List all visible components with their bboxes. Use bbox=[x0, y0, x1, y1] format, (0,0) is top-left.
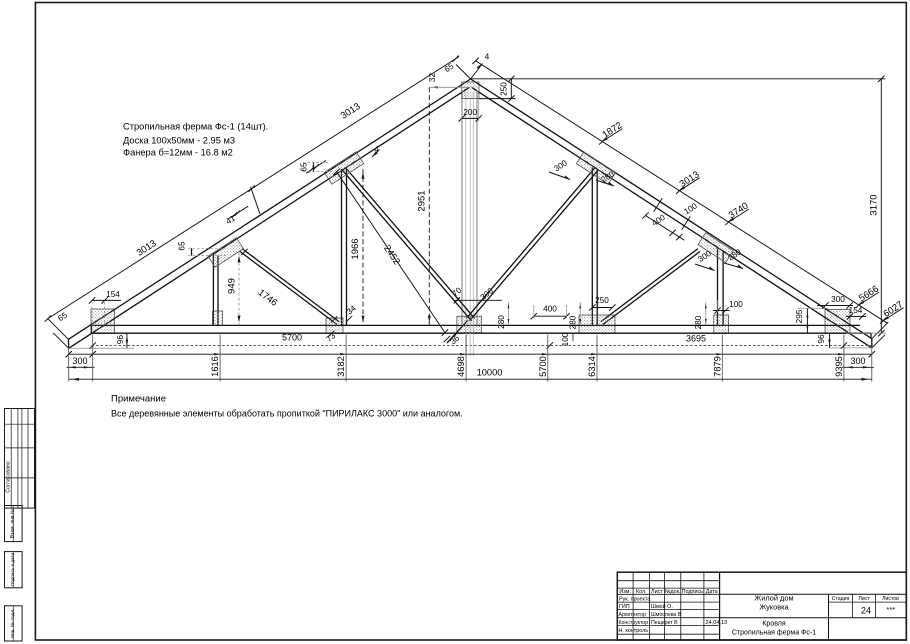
svg-text:32: 32 bbox=[428, 73, 437, 83]
svg-text:3170: 3170 bbox=[868, 194, 879, 215]
svg-text:Архитектор: Архитектор bbox=[619, 612, 647, 618]
svg-text:Стадия: Стадия bbox=[832, 596, 850, 602]
svg-text:Доска 100х50мм - 2.95 м3: Доска 100х50мм - 2.95 м3 bbox=[123, 136, 235, 146]
svg-text:5700: 5700 bbox=[282, 333, 302, 343]
svg-text:Лист: Лист bbox=[651, 589, 663, 595]
svg-text:10000: 10000 bbox=[477, 368, 503, 378]
svg-text:300: 300 bbox=[831, 295, 845, 304]
svg-text:100: 100 bbox=[561, 332, 570, 346]
svg-text:24,04,13: 24,04,13 bbox=[706, 620, 728, 626]
svg-text:Дата: Дата bbox=[706, 589, 718, 595]
svg-text:Жилой дом: Жилой дом bbox=[754, 594, 793, 603]
svg-text:Жуковка: Жуковка bbox=[759, 603, 789, 612]
svg-text:1966: 1966 bbox=[350, 238, 361, 259]
svg-text:ГИП: ГИП bbox=[619, 604, 630, 610]
svg-text:96: 96 bbox=[116, 335, 125, 345]
svg-text:949: 949 bbox=[227, 278, 238, 294]
svg-text:280: 280 bbox=[497, 315, 506, 329]
svg-text:Изм.: Изм. bbox=[619, 589, 631, 595]
svg-text:Стропильная ферма Фс-1 (14шт): Стропильная ферма Фс-1 (14шт). bbox=[123, 121, 268, 131]
svg-text:№док.: №док. bbox=[665, 589, 681, 595]
svg-text:4: 4 bbox=[374, 145, 379, 154]
svg-text:3695: 3695 bbox=[686, 334, 706, 344]
svg-text:9395: 9395 bbox=[834, 356, 844, 377]
svg-text:Подпись: Подпись bbox=[682, 589, 704, 595]
svg-text:Н. контроль: Н. контроль bbox=[619, 628, 649, 634]
svg-text:200: 200 bbox=[463, 108, 477, 117]
svg-text:Фанера б=12мм - 16.8 м2: Фанера б=12мм - 16.8 м2 bbox=[123, 148, 233, 158]
svg-text:96: 96 bbox=[817, 334, 826, 344]
svg-text:Все деревянные элементы обрабо: Все деревянные элементы обработать пропи… bbox=[111, 409, 463, 419]
svg-text:Стропильная ферма Фс-1: Стропильная ферма Фс-1 bbox=[732, 630, 816, 637]
svg-text:100: 100 bbox=[729, 300, 743, 309]
svg-text:5700: 5700 bbox=[538, 356, 548, 377]
svg-text:Пещерет В: Пещерет В bbox=[651, 620, 678, 626]
svg-text:300: 300 bbox=[72, 356, 87, 366]
svg-text:1616: 1616 bbox=[210, 356, 220, 377]
svg-text:2951: 2951 bbox=[416, 190, 427, 211]
svg-text:Подпись и дата: Подпись и дата bbox=[10, 553, 15, 586]
svg-text:***: *** bbox=[886, 605, 895, 614]
svg-text:300: 300 bbox=[850, 356, 865, 366]
svg-text:7879: 7879 bbox=[712, 356, 722, 377]
svg-text:4698: 4698 bbox=[456, 356, 466, 377]
svg-text:280: 280 bbox=[569, 315, 578, 329]
svg-text:154: 154 bbox=[106, 290, 120, 299]
svg-text:Конструктор: Конструктор bbox=[619, 620, 649, 626]
svg-text:Согласовано: Согласовано bbox=[5, 461, 11, 492]
svg-text:24: 24 bbox=[861, 606, 871, 616]
svg-text:Лист: Лист bbox=[858, 596, 870, 602]
svg-text:295: 295 bbox=[795, 309, 804, 323]
svg-text:4: 4 bbox=[485, 53, 490, 62]
svg-text:3182: 3182 bbox=[336, 356, 346, 377]
svg-text:Шмой О.: Шмой О. bbox=[651, 603, 673, 610]
svg-text:250: 250 bbox=[500, 82, 509, 96]
svg-text:65: 65 bbox=[300, 162, 309, 172]
svg-text:Листов: Листов bbox=[882, 596, 899, 602]
svg-text:Рук. проекта: Рук. проекта bbox=[619, 597, 650, 603]
svg-text:65: 65 bbox=[178, 241, 187, 251]
svg-text:154: 154 bbox=[849, 306, 863, 315]
svg-text:400: 400 bbox=[543, 305, 557, 314]
svg-text:280: 280 bbox=[694, 315, 703, 329]
svg-text:Кровля: Кровля bbox=[762, 621, 786, 628]
svg-text:6314: 6314 bbox=[587, 356, 597, 377]
svg-text:Примечание: Примечание bbox=[111, 394, 166, 405]
svg-text:250: 250 bbox=[595, 296, 609, 305]
svg-text:Шмослева В: Шмослева В bbox=[651, 612, 682, 618]
svg-text:Кол.: Кол. bbox=[636, 589, 647, 595]
